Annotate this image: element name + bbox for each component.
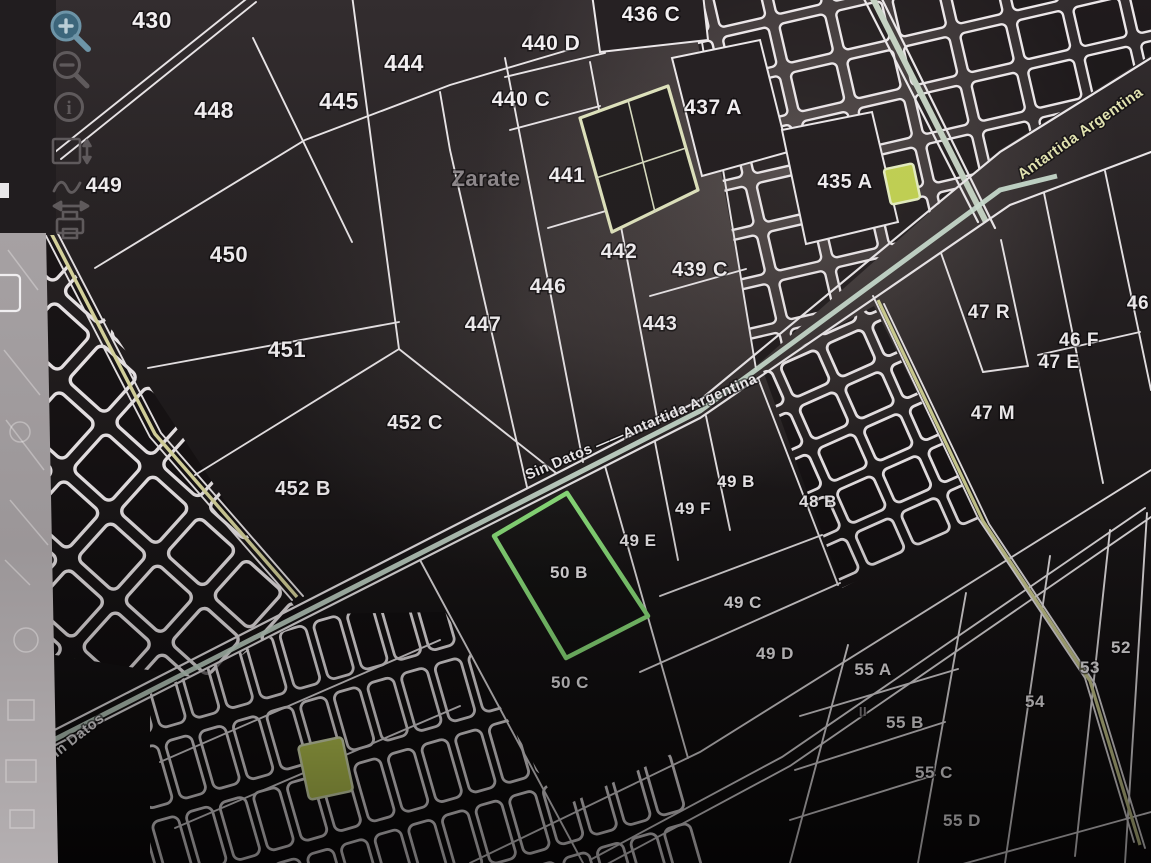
gis-map-window: 430436 C440 D444448445440 C437 A44944143…: [0, 0, 1151, 863]
left-dark-panel: [0, 0, 56, 235]
info-icon: i: [66, 98, 71, 119]
vignette: [0, 0, 1151, 863]
map-canvas[interactable]: 430436 C440 D444448445440 C437 A44944143…: [0, 0, 1151, 863]
